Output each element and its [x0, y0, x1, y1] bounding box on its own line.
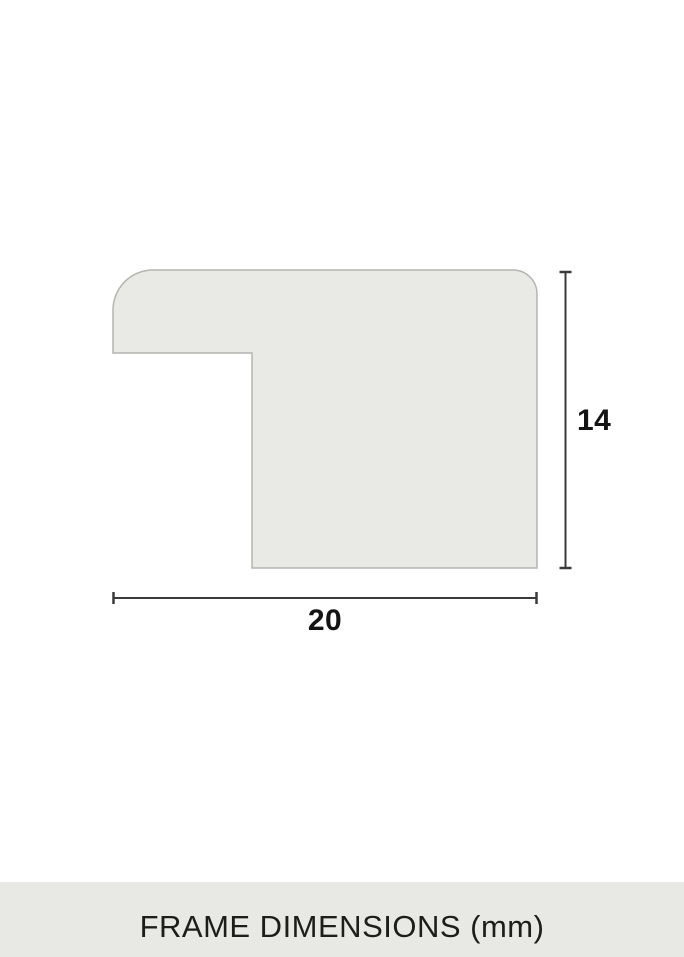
- diagram-canvas: [0, 0, 684, 957]
- height-dimension-line: [560, 272, 572, 568]
- width-dimension-label: 20: [285, 606, 365, 636]
- height-dimension-label: 14: [577, 406, 611, 436]
- caption-bar: FRAME DIMENSIONS (mm): [0, 882, 684, 957]
- frame-profile-shape: [113, 270, 537, 568]
- width-dimension-line: [114, 592, 537, 604]
- frame-dimensions-diagram: 14 20 FRAME DIMENSIONS (mm): [0, 0, 684, 957]
- caption-text: FRAME DIMENSIONS (mm): [140, 909, 545, 944]
